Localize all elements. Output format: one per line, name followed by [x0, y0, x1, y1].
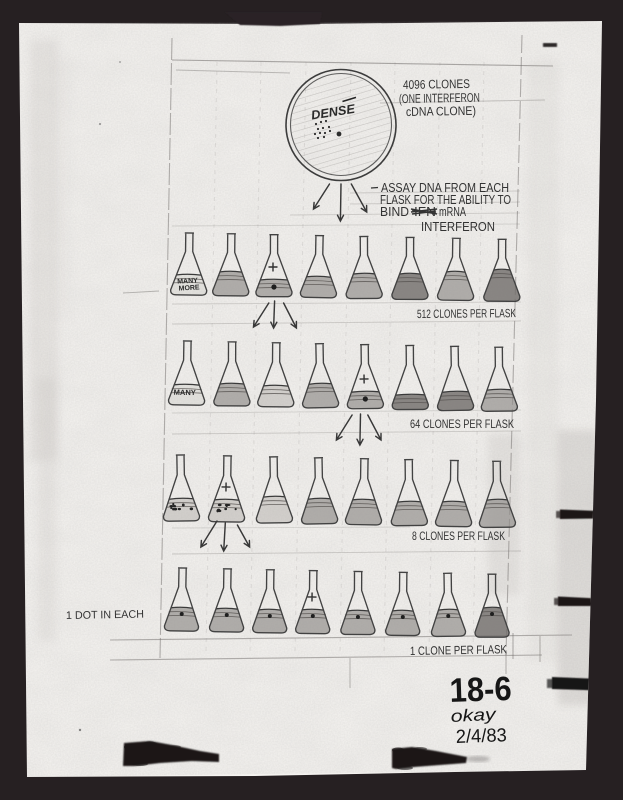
svg-text:2/4/83: 2/4/83 — [455, 725, 507, 748]
svg-text:MORE: MORE — [178, 284, 200, 292]
svg-text:okay: okay — [450, 705, 498, 726]
svg-text:cDNA CLONE): cDNA CLONE) — [406, 104, 476, 119]
svg-text:1 CLONE PER FLASK: 1 CLONE PER FLASK — [410, 642, 507, 658]
svg-text:64 CLONES PER FLASK: 64 CLONES PER FLASK — [410, 417, 514, 431]
svg-text:18-6: 18-6 — [449, 670, 512, 710]
svg-text:512 CLONES PER FLASK: 512 CLONES PER FLASK — [417, 306, 516, 321]
svg-text:INTERFERON: INTERFERON — [421, 220, 495, 234]
svg-text:1 DOT IN EACH: 1 DOT IN EACH — [66, 609, 144, 622]
svg-text:mRNA: mRNA — [439, 205, 466, 219]
svg-text:MANY: MANY — [174, 388, 196, 397]
svg-text:8 CLONES PER FLASK: 8 CLONES PER FLASK — [412, 529, 505, 543]
svg-text:BIND: BIND — [380, 205, 409, 219]
svg-text:4096 CLONES: 4096 CLONES — [403, 77, 470, 92]
